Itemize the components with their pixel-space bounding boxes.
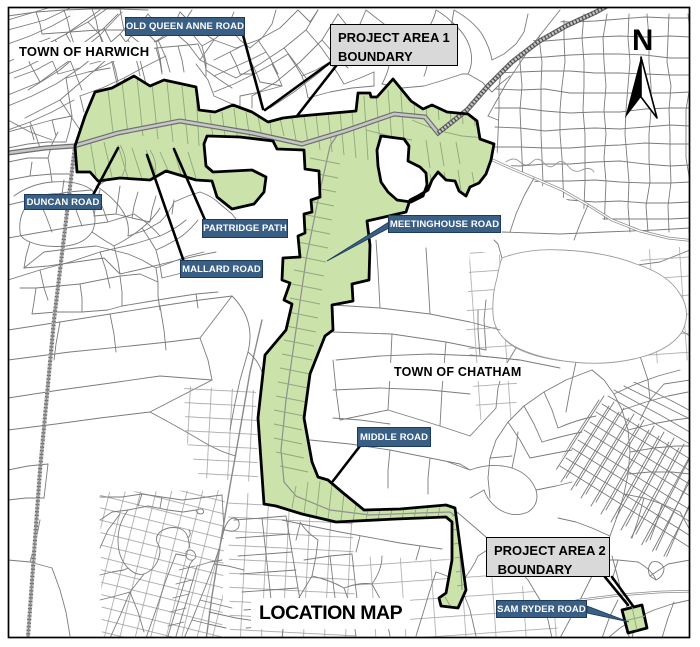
svg-text:N: N bbox=[632, 24, 653, 57]
